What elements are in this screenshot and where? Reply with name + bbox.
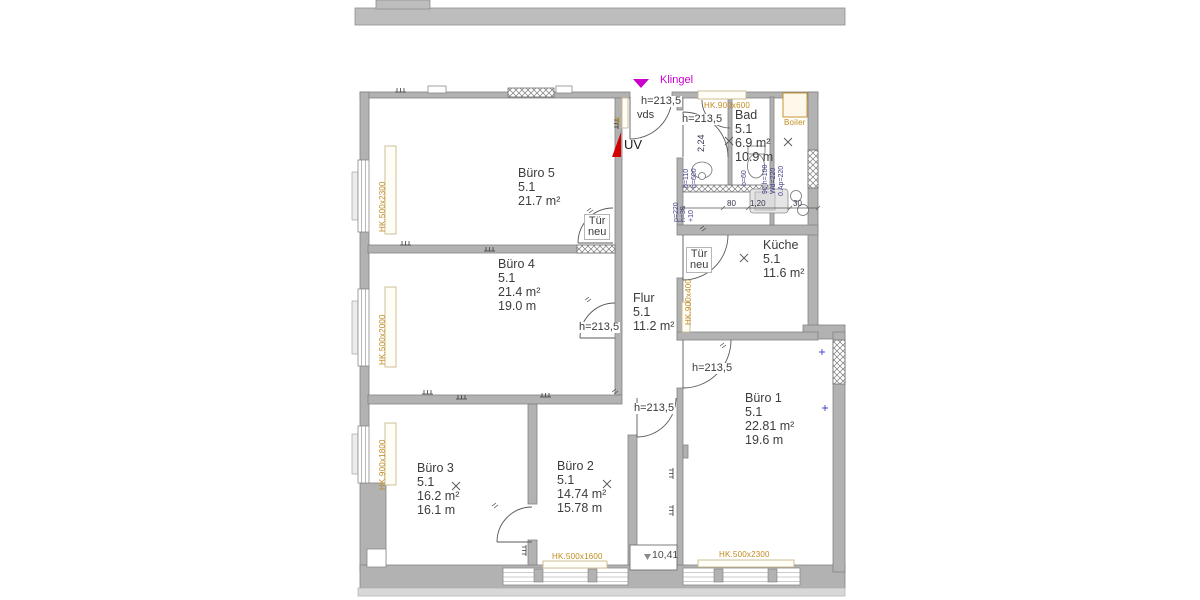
radiator-label-buero1: HK.500x2300 — [719, 550, 770, 559]
bath-dim-wd220: Wd=220 — [770, 168, 778, 194]
bath-dim-h30: h=30 — [680, 206, 688, 222]
room-label-buero5: Büro 5 5.1 21.7 m² — [518, 166, 560, 208]
radiator-label-kueche: HK.900x400 — [684, 279, 693, 325]
room-number: 5.1 — [745, 405, 794, 419]
room-number: 5.1 — [498, 271, 540, 285]
room-name: Büro 4 — [498, 257, 540, 271]
vds-label: vds — [636, 110, 655, 121]
room-area: 21.4 m² — [498, 285, 540, 299]
reference-crosses — [819, 349, 828, 411]
room-label-bad: Bad 5.1 6.9 m² 10.9 m — [735, 108, 773, 164]
door-height-buero4: h=213,5 — [578, 322, 620, 333]
room-name: Büro 3 — [417, 461, 459, 475]
klingel-label: Klingel — [660, 75, 693, 86]
floor-plan-canvas: Klingel UV Büro 5 5.1 21.7 m² Büro 4 5.1… — [0, 0, 1200, 600]
tuer-neu-kueche: Tür neu — [686, 247, 712, 273]
bath-dim-30: 30 — [793, 199, 802, 208]
room-label-kueche: Küche 5.1 11.6 m² — [763, 238, 804, 280]
bath-dim-120: 1,20 — [750, 199, 766, 208]
radiator-label-left-top: HK.500x2300 — [378, 181, 387, 232]
boiler-label: Boiler — [784, 118, 806, 127]
bath-dim-h100: 90 h=100 — [762, 165, 770, 194]
radiator-label-buero2: HK.500x1600 — [552, 552, 603, 561]
room-number: 5.1 — [633, 305, 674, 319]
room-number: 5.1 — [518, 180, 560, 194]
room-area: 6.9 m² — [735, 136, 773, 150]
room-extra: 15.78 m — [557, 501, 606, 515]
bath-dim-b110: b=110 — [683, 169, 691, 188]
door-height-buero1: h=213,5 — [691, 363, 733, 374]
tuer-neu-line2: neu — [690, 260, 708, 271]
room-name: Flur — [633, 291, 674, 305]
klingel-icon — [633, 79, 649, 88]
room-name: Büro 5 — [518, 166, 560, 180]
tuer-neu-line2: neu — [588, 227, 606, 238]
door-height-buero2: h=213,5 — [633, 403, 675, 414]
bath-dim-h600: h=600 — [691, 168, 699, 188]
tuer-neu-buero5: Tür neu — [584, 214, 610, 240]
bath-dim-ap220: 0.Ap=220 — [778, 166, 786, 196]
room-extra: 19.6 m — [745, 433, 794, 447]
room-number: 5.1 — [557, 473, 606, 487]
room-area: 14.74 m² — [557, 487, 606, 501]
bath-dim-80: 80 — [727, 199, 736, 208]
room-number: 5.1 — [763, 252, 804, 266]
room-name: Bad — [735, 108, 773, 122]
room-area: 16.2 m² — [417, 489, 459, 503]
room-area: 21.7 m² — [518, 194, 560, 208]
radiator-label-left-mid: HK.500x2000 — [378, 314, 387, 365]
room-label-buero4: Büro 4 5.1 21.4 m² 19.0 m — [498, 257, 540, 313]
room-label-flur: Flur 5.1 11.2 m² — [633, 291, 674, 333]
bath-dim-plus10: +10 — [688, 210, 696, 222]
radiator-label-left-bottom: HK.900x1800 — [378, 439, 387, 490]
room-label-buero1: Büro 1 5.1 22.81 m² 19.6 m — [745, 391, 794, 447]
room-name: Büro 2 — [557, 459, 606, 473]
uv-label: UV — [624, 138, 642, 151]
room-area: 11.6 m² — [763, 266, 804, 280]
room-extra: 16.1 m — [417, 503, 459, 517]
radiator-label-flur: HK — [616, 117, 623, 125]
neighbour-wall-band — [355, 0, 845, 25]
door-height-bad: h=213,5 — [681, 114, 723, 125]
room-area: 22.81 m² — [745, 419, 794, 433]
room-number: 5.1 — [735, 122, 773, 136]
room-label-buero2: Büro 2 5.1 14.74 m² 15.78 m — [557, 459, 606, 515]
room-label-buero3: Büro 3 5.1 16.2 m² 16.1 m — [417, 461, 459, 517]
room-name: Büro 1 — [745, 391, 794, 405]
room-extra: 19.0 m — [498, 299, 540, 313]
room-area: 11.2 m² — [633, 319, 674, 333]
room-extra: 10.9 m — [735, 150, 773, 164]
radiator-label-bad: HK.900x600 — [704, 101, 750, 110]
room-name: Küche — [763, 238, 804, 252]
door-height-entrance: h=213,5 — [640, 96, 682, 107]
bath-dim-b60: b=60 — [741, 170, 749, 186]
room-number: 5.1 — [417, 475, 459, 489]
dim-224: 2,24 — [697, 134, 706, 152]
level-value: 10,41 — [652, 550, 678, 561]
left-windows — [352, 160, 369, 483]
